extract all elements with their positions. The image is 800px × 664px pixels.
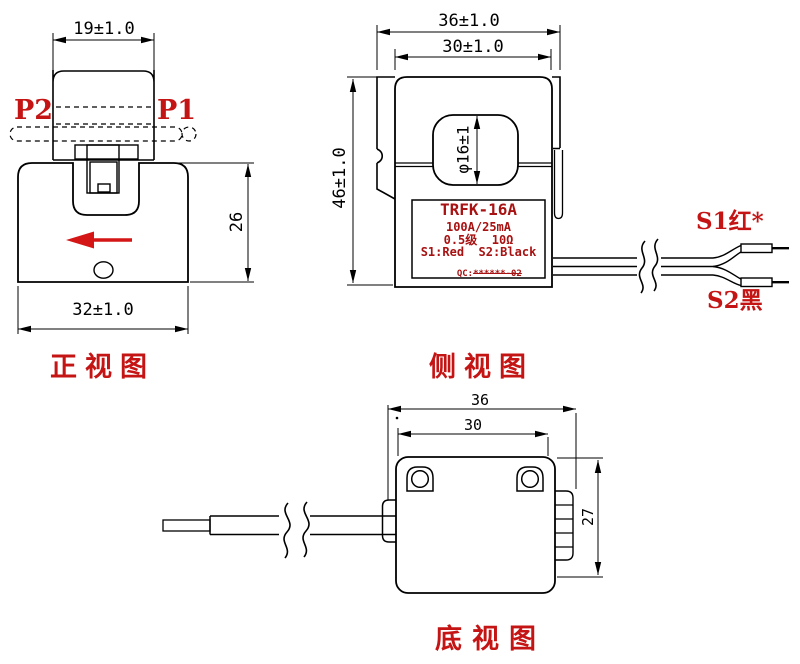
nameplate-qc-code: ******-02 (473, 269, 522, 279)
rib-fins (555, 491, 573, 560)
lead-wires (553, 246, 741, 286)
front-mounting-hole (94, 262, 113, 278)
side-outer-width-dim: 36±1.0 (423, 13, 515, 30)
bottom-inner-width-dim: 30 (448, 418, 498, 433)
side-height-dim: 46±1.0 (332, 132, 350, 224)
nameplate-qc-prefix: QC: (457, 269, 473, 279)
drawing-canvas (0, 0, 800, 664)
bottom-view-drawing (163, 405, 603, 593)
technical-drawing-page: 19±1.0 P2 P1 26 32±1.0 正视图 36±1.0 30±1.0… (0, 0, 800, 664)
front-body-width-dim: 32±1.0 (57, 302, 149, 319)
bottom-view-title: 底视图 (413, 626, 568, 653)
reference-dot (396, 417, 399, 420)
current-direction-arrow (66, 232, 132, 249)
wire-break-symbol (639, 239, 658, 293)
latch-clip (75, 145, 138, 193)
terminal-label-p1: P1 (157, 97, 196, 124)
side-view-title: 侧视图 (409, 354, 554, 381)
bottom-outer-width-dim: 36 (455, 393, 505, 408)
front-view-drawing (10, 33, 254, 334)
nameplate-model: TRFK-16A (412, 202, 545, 218)
nameplate-leads: S1:Red S2:Black (412, 246, 545, 258)
wire-label-s1: S1红* (696, 210, 764, 233)
top-clamp-outline (53, 70, 154, 160)
clamp-split-lines (395, 163, 552, 167)
terminal-s2 (741, 278, 789, 287)
bottom-body-outline (396, 457, 555, 593)
mounting-hole-left (407, 467, 433, 491)
terminal-label-p2: P2 (14, 97, 53, 124)
bottom-height-dim: 27 (581, 495, 597, 539)
nameplate-qc: QC:******-02 (412, 261, 545, 288)
front-body-outline (18, 163, 188, 282)
side-inner-width-dim: 30±1.0 (427, 39, 519, 56)
mounting-hole-right (517, 467, 543, 491)
cable (163, 516, 396, 535)
strain-relief-bump (383, 500, 397, 542)
side-right-tab (552, 77, 563, 219)
front-view-title: 正视图 (30, 354, 175, 381)
front-top-width-dim: 19±1.0 (58, 21, 150, 38)
side-left-tab (377, 77, 395, 199)
cable-break-symbol (284, 502, 309, 558)
front-height-dim: 26 (229, 202, 247, 242)
hole-diameter-dim: φ16±1 (456, 110, 473, 190)
terminal-s1 (741, 244, 789, 253)
nameplate-ratio: 100A/25mA (412, 221, 545, 233)
wire-label-s2: S2黑 (707, 289, 763, 312)
